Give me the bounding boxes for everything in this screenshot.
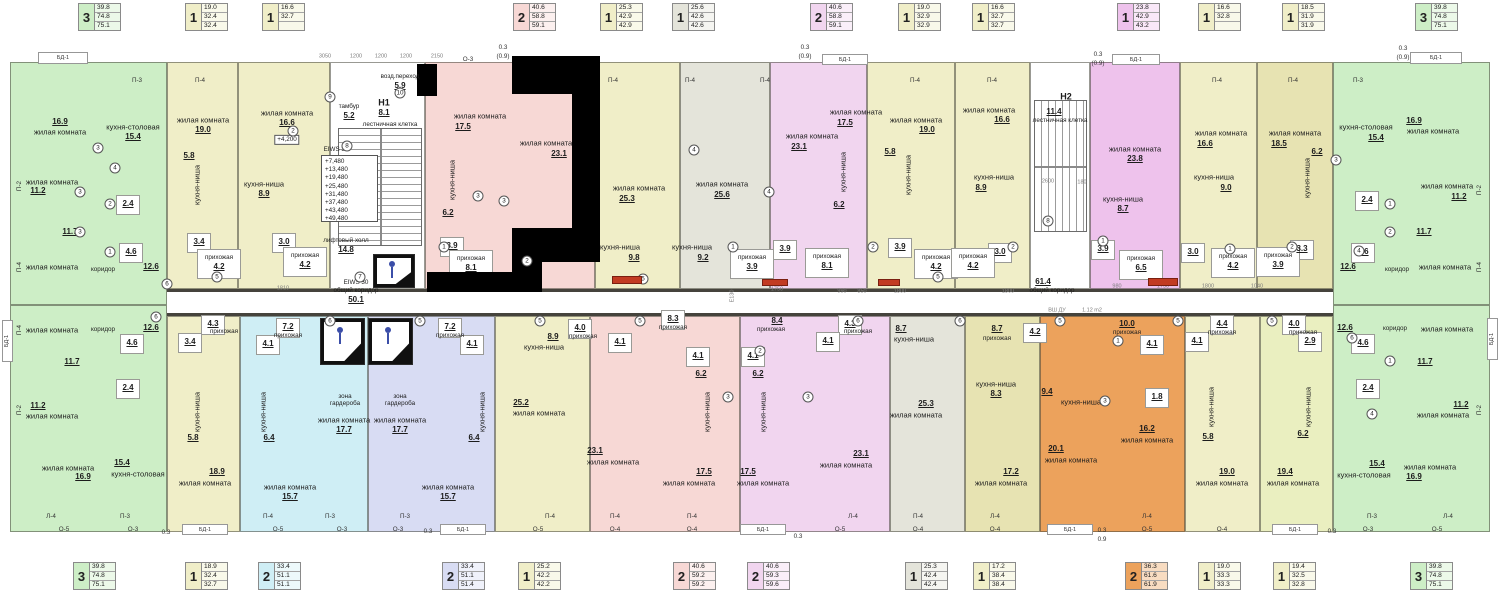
room-label: кухня-ниша [1304, 387, 1312, 427]
room-label: П-3 [1367, 514, 1377, 520]
room-label: кухня-столовая [106, 123, 159, 131]
room-label: 3.9 [1272, 261, 1283, 269]
room-label: 6.2 [833, 201, 844, 209]
room-label: 0.3 [794, 534, 803, 540]
room-label: 4.1 [262, 340, 273, 348]
room-number-circle: 1 [1385, 199, 1396, 210]
room-label: 18.9 [209, 468, 225, 476]
room-label: кухня-ниша [703, 392, 711, 432]
room-label: 5.8 [187, 434, 198, 442]
unit-badge-area-value: 74.8 [90, 572, 115, 581]
electrical-panel [1148, 278, 1178, 286]
room-label: 16.9 [75, 473, 91, 481]
room-label: 2.9 [1304, 337, 1315, 345]
room-label: жилая комната [1267, 479, 1319, 487]
balcony-tab-label: БД-1 [1289, 527, 1301, 533]
room-label: 19.0 [1219, 468, 1235, 476]
room-label: 15.4 [114, 459, 130, 467]
room-label: О-5 [1432, 527, 1443, 533]
room-label: жилая комната [513, 409, 565, 417]
room-label: 12.6 [1337, 324, 1353, 332]
room-label: 0.3 [1098, 528, 1107, 534]
room-label: 12.6 [143, 263, 159, 271]
room-label: кухня-ниша [759, 392, 767, 432]
room-label: возд.переход [381, 74, 420, 80]
balcony-tab: БД-1 [1272, 524, 1318, 535]
unit-badge[interactable]: 125.342.942.9 [600, 3, 643, 31]
room-label: жилая комната [454, 112, 506, 120]
room-label: жилая комната [663, 479, 715, 487]
unit-badge-area-value: 43.2 [1134, 22, 1159, 30]
unit-badge[interactable]: 240.659.259.2 [673, 562, 716, 590]
room-label: 16.9 [1406, 473, 1422, 481]
unit-badge-area-value: 74.8 [95, 13, 120, 22]
unit-badge-area-value: 59.3 [764, 572, 789, 581]
room-number-circle: 2 [1287, 242, 1298, 253]
room-number-circle: 5 [933, 272, 944, 283]
unit-badge[interactable]: 119.032.932.9 [898, 3, 941, 31]
unit-badge-areas: 40.658.859.1 [827, 4, 852, 30]
room-label: 8.4 [771, 317, 782, 325]
unit-badge[interactable]: 119.032.432.4 [185, 3, 228, 31]
room-label: кухня-столовая [1339, 123, 1392, 131]
room-label: жилая комната [1421, 325, 1473, 333]
unit-badge-area-value: 61.9 [1142, 581, 1167, 589]
unit-badge-area-value: 40.6 [827, 4, 852, 13]
unit-badge-room-count: 1 [974, 563, 990, 589]
unit-badge-area-value: 38.4 [990, 581, 1015, 589]
unit-badge-room-count: 3 [79, 4, 95, 30]
unit-badge[interactable]: 339.874.875.1 [73, 562, 116, 590]
unit-badge-areas: 36.361.661.9 [1142, 563, 1167, 589]
room-label: 8.9 [975, 184, 986, 192]
balcony-tab-label: БД-1 [5, 335, 11, 347]
unit-badge[interactable]: 236.361.661.9 [1125, 562, 1168, 590]
room-label: 25.3 [918, 400, 934, 408]
unit-badge-areas: 33.451.151.1 [275, 563, 300, 589]
unit-badge-area-value: 32.9 [915, 22, 940, 30]
room-label: 0.3 [1399, 46, 1408, 52]
room-label: кухня-ниша [600, 243, 640, 251]
room-number-circle: 5 [1055, 316, 1066, 327]
room-label: прихожая [922, 255, 950, 261]
room-label: П-4 [987, 78, 997, 84]
room-label: О-4 [1217, 527, 1228, 533]
unit-badge-area-value: 42.6 [689, 22, 714, 30]
room-number-circle: 3 [75, 187, 86, 198]
unit-badge-areas: 39.874.875.1 [1432, 4, 1457, 30]
room-label: жилая комната [520, 139, 572, 147]
room-label: прихожая [1208, 330, 1236, 336]
room-label: кухня-ниша [839, 152, 847, 192]
room-label: Н1 [378, 99, 390, 108]
unit-badge-room-count: 1 [673, 4, 689, 30]
unit-badge[interactable]: 116.632.732.7 [972, 3, 1015, 31]
unit-badge-room-count: 2 [514, 4, 530, 30]
room-label: 15.7 [282, 493, 298, 501]
room-label: жилая комната [820, 461, 872, 469]
room-label: 23.1 [853, 450, 869, 458]
unit-badge-area-value: 61.6 [1142, 572, 1167, 581]
room-label: 9.4 [1041, 388, 1052, 396]
selected-unit-outline [572, 92, 600, 230]
room-number-circle: 3 [499, 196, 510, 207]
room-label: П-3 [120, 514, 130, 520]
unit-badge-areas: 25.642.642.6 [689, 4, 714, 30]
room-label: П-4 [17, 262, 23, 272]
room-number-circle: 5 [635, 316, 646, 327]
room-number-circle: 3 [1100, 396, 1111, 407]
room-label: 17.5 [696, 468, 712, 476]
room-label: 4.0 [574, 324, 585, 332]
room-label: жилая комната [374, 416, 426, 424]
unit-badge-areas: 25.242.242.2 [535, 563, 560, 589]
unit-badge-areas: 16.632.8 [1215, 4, 1240, 30]
room-label: 2600 [1042, 179, 1054, 185]
room-label: 0.3 [1094, 52, 1103, 58]
unit-badge-room-count: 1 [1199, 4, 1215, 30]
room-label: прихожая [436, 333, 464, 339]
room-label: П-4 [545, 514, 555, 520]
unit-badge-room-count: 1 [906, 563, 922, 589]
unit-badge-area-value: 19.0 [915, 4, 940, 13]
room-label: 11.2 [30, 187, 45, 195]
unit-badge-room-count: 1 [899, 4, 915, 30]
unit-badge[interactable]: 118.932.432.7 [185, 562, 228, 590]
room-label: жилая комната [1421, 182, 1473, 190]
unit-badge[interactable]: 233.451.151.4 [442, 562, 485, 590]
unit-badge-area-value: 36.3 [1142, 563, 1167, 572]
unit-badge-area-value: 25.2 [535, 563, 560, 572]
room-label: О-3 [393, 527, 404, 533]
room-label: П-4 [608, 78, 618, 84]
room-label: кухня-ниша [524, 343, 564, 351]
room-label: П-2 [17, 405, 23, 415]
unit-badge-area-value: 31.9 [1299, 13, 1324, 22]
room-label: 3.9 [894, 243, 905, 251]
room-label: О-3 [1363, 527, 1374, 533]
room-label: 19.0 [919, 126, 935, 134]
unit-badge-area-value: 16.6 [1215, 4, 1240, 13]
unit-badge-room-count: 3 [1411, 563, 1427, 589]
unit-badge-area-value: 19.0 [202, 4, 227, 13]
room-label: 5.8 [183, 152, 194, 160]
unit-badge[interactable]: 240.658.859.1 [810, 3, 853, 31]
room-label: жилая комната [1109, 145, 1161, 153]
unit-badge[interactable]: 119.033.333.3 [1198, 562, 1241, 590]
unit-badge[interactable]: 125.642.642.6 [672, 3, 715, 31]
room-number-circle: 1 [1098, 236, 1109, 247]
room-label: 5.8 [884, 148, 895, 156]
room-label: П-4 [1212, 78, 1222, 84]
room-label: +4,200 [274, 135, 299, 145]
room-label: 4.1 [1191, 337, 1202, 345]
room-label: 23.8 [1127, 155, 1143, 163]
unit-badge-area-value: 19.0 [1215, 563, 1240, 572]
room-label: 4.6 [1357, 339, 1368, 347]
room-label: кухня-ниша [672, 243, 712, 251]
room-label: 5.2 [343, 112, 354, 120]
room-label: П-4 [687, 514, 697, 520]
unit-badge[interactable]: 125.342.442.4 [905, 562, 948, 590]
room-label: жилая комната [696, 180, 748, 188]
room-label: 4.6 [125, 248, 136, 256]
room-label: 6.4 [468, 434, 479, 442]
balcony-tab: БД-1 [1112, 54, 1160, 65]
room-label: 11.4 [1046, 108, 1061, 116]
room-label: 7.2 [282, 323, 293, 331]
room-label: 4.1 [1146, 340, 1157, 348]
unit-badge-area-value: 32.7 [989, 13, 1014, 22]
room-label: 14.8 [338, 246, 354, 254]
unit-badge-room-count: 1 [1118, 4, 1134, 30]
unit-badge[interactable]: 117.238.438.4 [973, 562, 1016, 590]
unit-badge[interactable]: 240.659.359.6 [747, 562, 790, 590]
room-label: жилая комната [261, 109, 313, 117]
room-number-circle: 5 [1267, 316, 1278, 327]
unit-badge-area-value: 25.6 [689, 4, 714, 13]
room-label: 180 [1077, 180, 1086, 186]
room-label: общий коридор [1029, 288, 1074, 294]
unit-badge-area-value: 40.6 [690, 563, 715, 572]
room-label: кухня-ниша [478, 392, 486, 432]
room-label: 15.4 [125, 133, 141, 141]
room-number-circle: 6 [325, 316, 336, 327]
room-label: 8.3 [667, 315, 678, 323]
unit-badge-area-value: 59.2 [690, 581, 715, 589]
room-label: 6.2 [1311, 148, 1322, 156]
room-number-circle: 3 [93, 143, 104, 154]
room-label: лифтовый холл [323, 238, 368, 244]
room-label: 16.6 [1197, 140, 1213, 148]
room-label: 12.6 [1340, 263, 1356, 271]
room-number-circle: 1 [1225, 244, 1236, 255]
room-label: кухня-ниша [974, 173, 1014, 181]
room-label: 23.1 [551, 150, 567, 158]
unit-badge-area-value: 75.1 [95, 22, 120, 30]
apt-1r-253-bot[interactable] [890, 316, 965, 532]
room-label: 25.6 [714, 191, 730, 199]
unit-badge-area-value: 40.6 [764, 563, 789, 572]
unit-badge[interactable]: 233.451.151.1 [258, 562, 301, 590]
room-number-circle: 6 [151, 312, 162, 323]
unit-badge-room-count: 2 [259, 563, 275, 589]
unit-badge[interactable]: 339.874.875.1 [1415, 3, 1458, 31]
room-label: 8.1 [378, 109, 389, 117]
room-label: О-5 [1142, 527, 1153, 533]
unit-badge-room-count: 1 [973, 4, 989, 30]
room-label: лестничная клетка [1033, 118, 1088, 124]
room-label: 18.5 [1271, 140, 1287, 148]
room-number-circle: 4 [1354, 246, 1365, 257]
unit-badge-area-value: 31.9 [1299, 22, 1324, 30]
room-label: 16.9 [52, 118, 68, 126]
room-label: кухня-ниша [1303, 158, 1311, 198]
room-number-circle: 10 [395, 88, 406, 99]
room-label: 0.3 [499, 45, 508, 51]
room-label: 19.0 [195, 126, 211, 134]
room-label: кухня-ниша [1061, 398, 1101, 406]
room-label: 16.6 [994, 116, 1010, 124]
room-label: кухня-ниша [1103, 195, 1143, 203]
room-label: 7.2 [444, 323, 455, 331]
room-label: 1800 [1002, 289, 1014, 295]
room-number-circle: 5 [415, 316, 426, 327]
room-label: прихожая [569, 334, 597, 340]
balcony-tab: БД-1 [38, 52, 88, 64]
room-label: гардероба [330, 401, 360, 407]
room-number-circle: 3 [1331, 155, 1342, 166]
room-label: 10.0 [1119, 320, 1135, 328]
unit-badge-area-value: 42.4 [922, 581, 947, 589]
unit-badge-area-value: 23.8 [1134, 4, 1159, 13]
room-label: 3050 [319, 54, 331, 60]
room-label: жилая комната [737, 479, 789, 487]
room-number-circle: 1 [1385, 356, 1396, 367]
room-label: жилая комната [177, 116, 229, 124]
room-label: 11.2 [30, 402, 45, 410]
room-label: жилая комната [26, 326, 78, 334]
apt-1r-194-bot[interactable] [1260, 316, 1333, 532]
electrical-panel [612, 276, 642, 284]
room-label: О-3 [337, 527, 348, 533]
room-label: 4.2 [299, 261, 310, 269]
unit-badge[interactable]: 240.658.859.1 [513, 3, 556, 31]
room-label: 2.4 [122, 200, 133, 208]
balcony-tab-label: БД-1 [1130, 57, 1142, 63]
unit-badge[interactable]: 123.842.943.2 [1117, 3, 1160, 31]
room-label: Л-4 [1142, 514, 1152, 520]
unit-badge-room-count: 2 [1126, 563, 1142, 589]
unit-badge-area-value: 59.2 [690, 572, 715, 581]
unit-badge-room-count: 2 [674, 563, 690, 589]
room-label: 1200 [400, 54, 412, 60]
room-label: 11.7 [1416, 228, 1431, 236]
room-number-circle: 1 [105, 247, 116, 258]
room-number-circle: 3 [473, 191, 484, 202]
unit-badge-area-value: 32.5 [1290, 572, 1315, 581]
room-label: (0.9) [799, 54, 812, 60]
room-label: жилая комната [26, 412, 78, 420]
unit-badge[interactable]: 125.242.242.2 [518, 562, 561, 590]
unit-badge-areas: 23.842.943.2 [1134, 4, 1159, 30]
balcony-tab-label: БД-1 [1490, 333, 1496, 345]
room-label: жилая комната [26, 263, 78, 271]
unit-badge-area-value: 38.4 [990, 572, 1015, 581]
room-number-circle: 4 [689, 145, 700, 156]
room-label: жилая комната [975, 479, 1027, 487]
room-label: П-3 [400, 514, 410, 520]
balcony-tab-label: БД-1 [1430, 55, 1442, 61]
room-label: коридор [1383, 326, 1407, 332]
unit-badge[interactable]: 118.531.931.9 [1282, 3, 1325, 31]
room-label: коридор [1385, 267, 1409, 273]
balcony-tab: БД-1 [2, 320, 13, 362]
room-label: 1.8 [1151, 393, 1162, 401]
room-label: 8.3 [990, 390, 1001, 398]
unit-badge-area-value: 42.9 [617, 22, 642, 30]
room-label: П-2 [1477, 185, 1483, 195]
unit-badge[interactable]: 339.874.875.1 [78, 3, 121, 31]
room-label: 4.2 [1227, 262, 1238, 270]
room-label: П-4 [195, 78, 205, 84]
room-label: кухня-ниша [1194, 173, 1234, 181]
room-label: жилая комната [1045, 456, 1097, 464]
unit-badge-room-count: 3 [74, 563, 90, 589]
room-label: 4.1 [692, 352, 703, 360]
balcony-tab: БД-1 [1410, 52, 1462, 64]
room-label: 8.7 [895, 325, 906, 333]
unit-badge-room-count: 1 [1199, 563, 1215, 589]
room-number-circle: 3 [803, 392, 814, 403]
room-label: 850 [857, 289, 866, 295]
room-label: О-4 [913, 527, 924, 533]
room-number-circle: 4 [1367, 409, 1378, 420]
room-number-circle: 2 [288, 126, 299, 137]
electrical-panel [878, 279, 900, 286]
room-label: П-4 [263, 514, 273, 520]
unit-badge-areas: 19.033.333.3 [1215, 563, 1240, 589]
unit-badge-areas: 16.632.732.7 [989, 4, 1014, 30]
room-label: 6.2 [695, 370, 706, 378]
room-label: О-5 [835, 527, 846, 533]
apt-1r-172-bot[interactable] [965, 316, 1040, 532]
unit-badge-areas: 40.658.859.1 [530, 4, 555, 30]
room-label: 3.9 [746, 263, 757, 271]
room-label: кухня-ниша [193, 392, 201, 432]
room-label: 4.2 [1029, 328, 1040, 336]
room-label: 8.1 [465, 264, 476, 272]
room-label: 2150 [431, 54, 443, 60]
unit-badge-area-value: 32.7 [989, 22, 1014, 30]
balcony-tab: БД-1 [822, 54, 868, 65]
balcony-tab-label: БД-1 [839, 57, 851, 63]
room-label: 0.3 [424, 529, 433, 535]
room-label: 11.7 [1417, 358, 1432, 366]
room-label: П-2 [17, 181, 23, 191]
balcony-tab-label: БД-1 [757, 527, 769, 533]
room-label: гардероба [385, 401, 415, 407]
unit-badge[interactable]: 119.432.532.8 [1273, 562, 1316, 590]
room-number-circle: 6 [1347, 333, 1358, 344]
unit-badge-room-count: 1 [186, 4, 202, 30]
room-label: общий коридор [333, 288, 378, 294]
unit-badge-room-count: 2 [811, 4, 827, 30]
room-label: жилая комната [26, 178, 78, 186]
room-label: 9.8 [628, 254, 639, 262]
room-label: П-3 [132, 78, 142, 84]
room-label: 6.2 [1297, 430, 1308, 438]
room-label: прихожая [959, 254, 987, 260]
unit-badge-area-value: 74.8 [1432, 13, 1457, 22]
room-label: 17.5 [455, 123, 471, 131]
room-label: 11.7 [64, 358, 79, 366]
room-label: 61.4 [1035, 278, 1051, 286]
room-label: 4.2 [967, 262, 978, 270]
room-label: П-4 [610, 514, 620, 520]
room-label: прихожая [757, 327, 785, 333]
unit-badge-area-value: 51.1 [459, 572, 484, 581]
unit-badge[interactable]: 339.874.875.1 [1410, 562, 1453, 590]
unit-badge-room-count: 1 [601, 4, 617, 30]
room-label: 3.0 [278, 238, 289, 246]
room-label: О-4 [990, 527, 1001, 533]
unit-badge[interactable]: 116.632.7 [262, 3, 305, 31]
unit-badge-room-count: 3 [1416, 4, 1432, 30]
room-label: прихожая [844, 329, 872, 335]
room-number-circle: 2 [1008, 242, 1019, 253]
unit-badge[interactable]: 116.632.8 [1198, 3, 1241, 31]
